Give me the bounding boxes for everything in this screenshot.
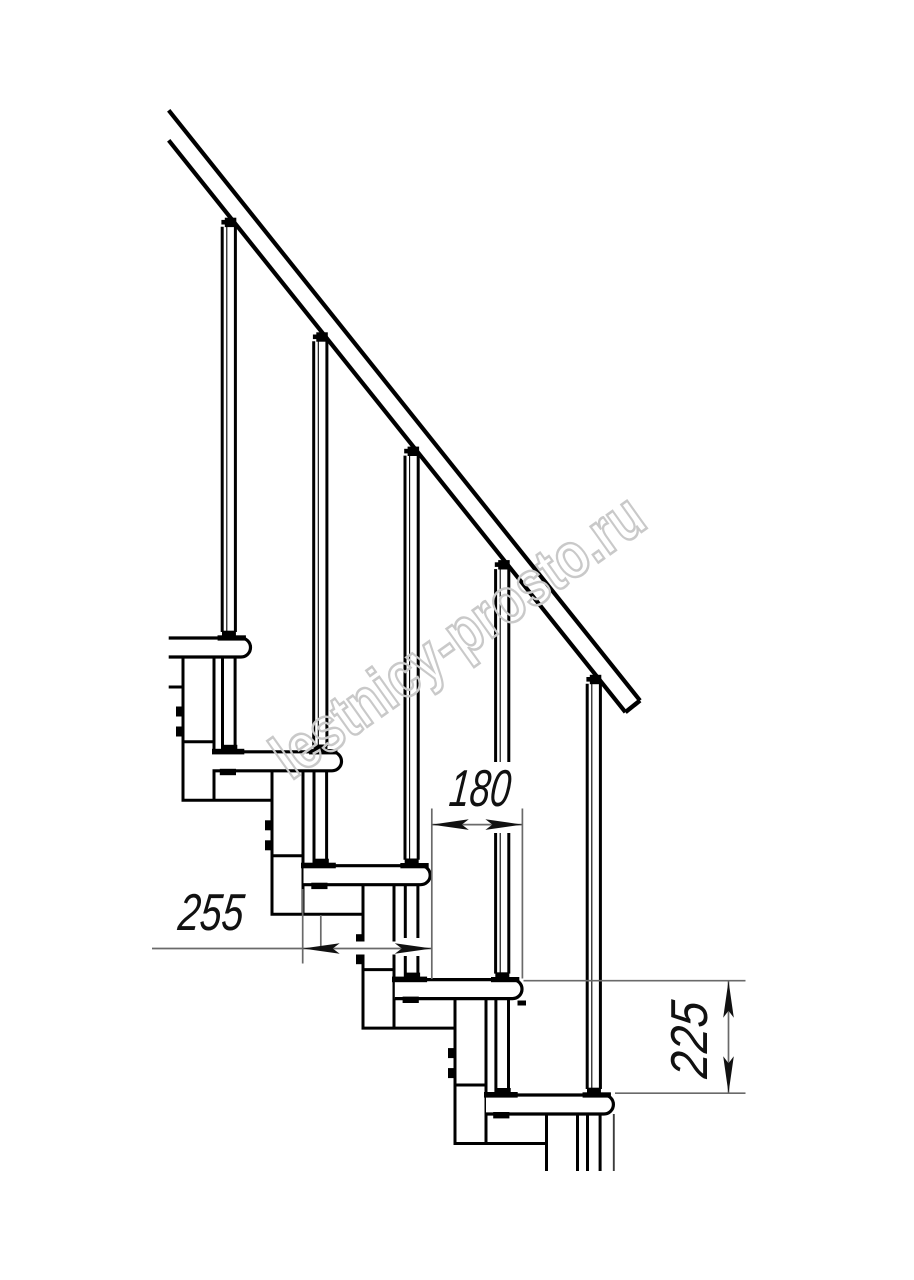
svg-text:225: 225 (661, 997, 719, 1081)
svg-text:255: 255 (175, 884, 248, 942)
svg-text:180: 180 (447, 760, 514, 818)
